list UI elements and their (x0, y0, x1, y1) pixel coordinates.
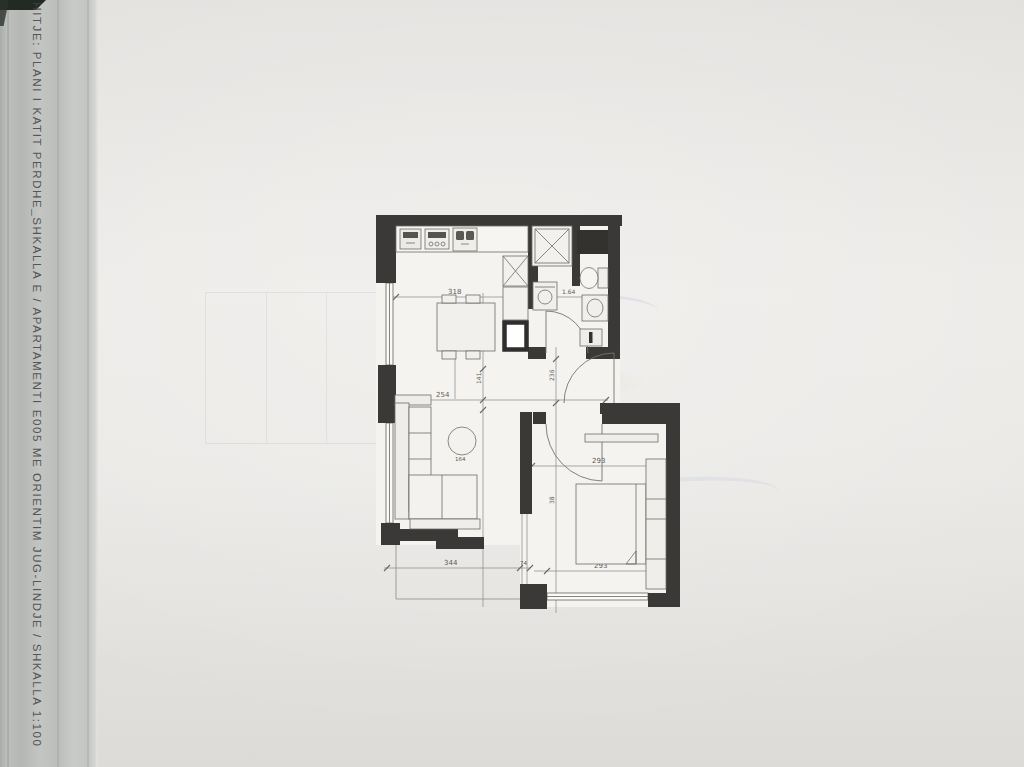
fridge-icon (400, 229, 421, 249)
shower-icon (532, 226, 572, 266)
dim-hall-height-2: 236 (548, 369, 555, 381)
sideboard-icon (410, 519, 480, 529)
dim-terrace-width: 344 (444, 559, 458, 567)
page-edge-strip (0, 0, 98, 767)
dim-step-width: 74 (520, 560, 527, 566)
kitchen-sink-icon (453, 228, 477, 251)
round-table-icon (448, 427, 476, 455)
duct-icon (577, 230, 608, 254)
bed-icon (576, 484, 646, 564)
radiator-icon (580, 329, 602, 346)
dim-bathroom-width: 1.64 (562, 288, 576, 295)
closet-icon (503, 256, 528, 286)
stove-icon (425, 229, 449, 249)
plan-title-vertical: SHITJE: PLANI I KATIT PERDHE_SHKALLA E /… (31, 0, 43, 767)
dim-hall-height: 141 (475, 372, 482, 384)
dim-bedroom-width-top: 293 (592, 457, 605, 465)
vanity-sink-icon (582, 295, 608, 321)
floor-plan: 318 1.64 254 141 236 293 38 344 74 293 1… (370, 207, 680, 623)
shaft-icon (505, 323, 527, 350)
dining-table-icon (437, 295, 495, 359)
wardrobe-icon (646, 459, 666, 589)
dim-table-label: 164 (455, 456, 466, 462)
toilet-icon (580, 268, 608, 289)
washing-machine-icon (533, 282, 557, 310)
console-icon (585, 434, 658, 442)
watermark-grid (205, 292, 392, 444)
shelf-unit (503, 287, 528, 320)
floor-plan-svg: 318 1.64 254 141 236 293 38 344 74 293 1… (370, 207, 680, 623)
dim-bedroom-side: 38 (548, 496, 555, 504)
terrace-outline (396, 545, 526, 599)
dim-living-width: 254 (436, 391, 450, 399)
photographed-page: SHITJE: PLANI I KATIT PERDHE_SHKALLA E /… (0, 0, 1024, 767)
